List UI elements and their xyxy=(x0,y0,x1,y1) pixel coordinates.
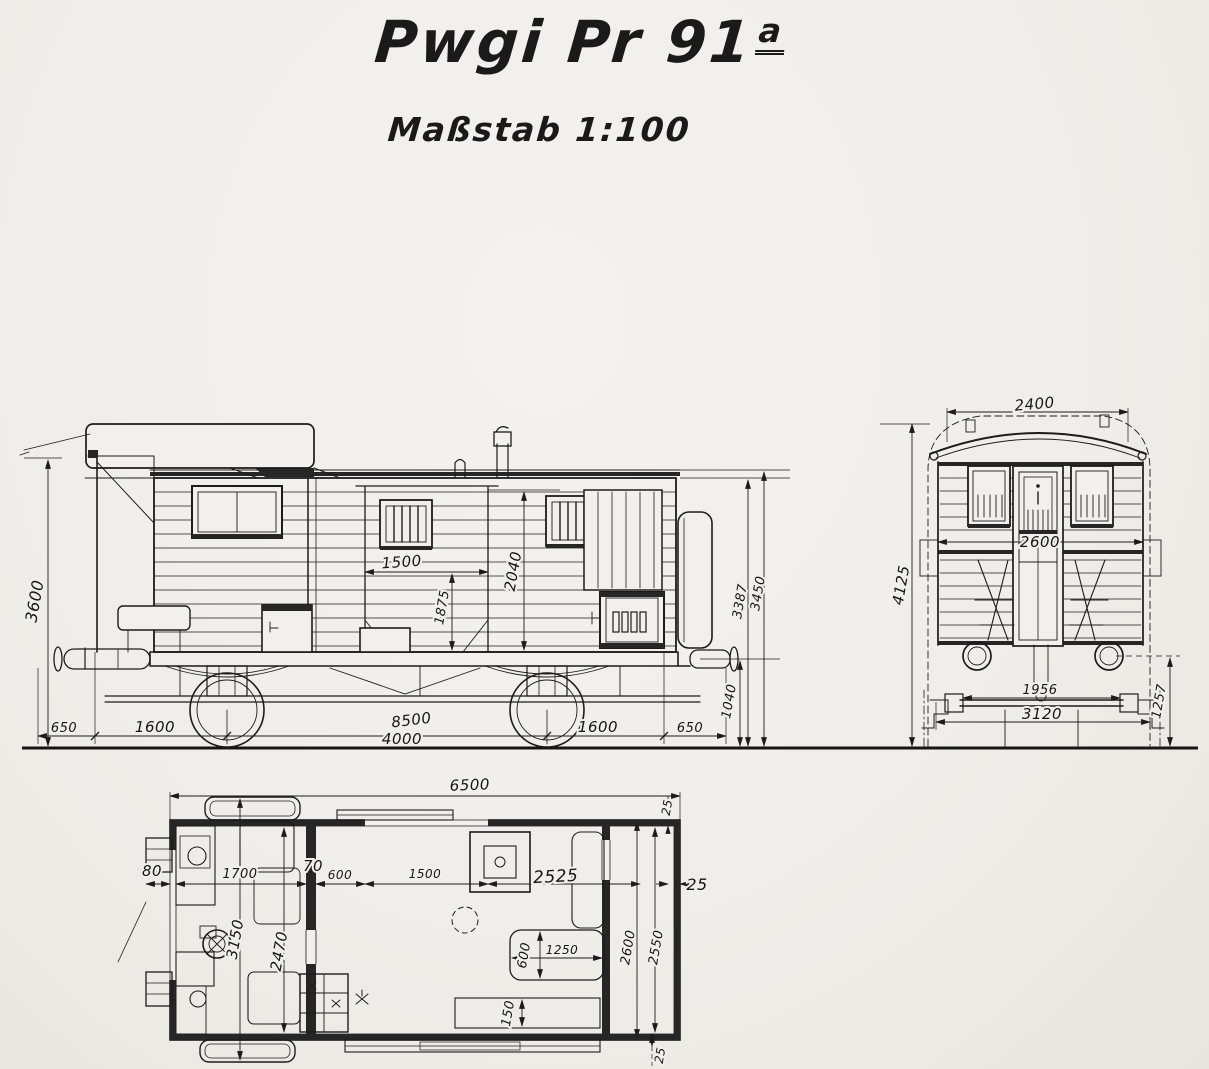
dim-end-body-width: 2600 xyxy=(1020,533,1060,551)
side-platform xyxy=(88,450,190,652)
dim-plan-door-width: 600 xyxy=(328,868,352,882)
dim-side-wheelbase: 4000 xyxy=(382,730,422,748)
plan-dimensions: 6500 25 80 1700 70 600 1500 2525 25 3150… xyxy=(142,775,708,1066)
dim-side-height-roof: 3450 xyxy=(748,575,769,612)
dim-plan-width-over-steps: 3150 xyxy=(223,918,248,961)
dim-end-buffer-height: 1257 xyxy=(1149,683,1170,720)
dim-side-buffer-height: 1040 xyxy=(719,683,740,720)
dim-side-door-opening: 1500 xyxy=(381,552,422,573)
drawing-scale-label: Maßstab 1:100 xyxy=(386,110,692,149)
end-door xyxy=(1013,466,1063,646)
dim-plan-service-compartment: 1700 xyxy=(222,867,257,882)
dim-plan-bench-width: 600 xyxy=(515,941,534,970)
dim-plan-wall-bottom: 25 xyxy=(652,1046,669,1064)
plan-freight-room-furniture xyxy=(452,832,604,1028)
dim-plan-width-body: 2600 xyxy=(618,929,639,966)
side-roof-chimney xyxy=(455,427,511,477)
side-buffer-left xyxy=(54,647,150,671)
side-elevation-view xyxy=(20,424,738,747)
dim-plan-freight-section: 2525 xyxy=(533,866,579,888)
dim-plan-width-interior: 2470 xyxy=(267,930,292,973)
dim-end-height-total: 4125 xyxy=(889,564,914,607)
end-roof xyxy=(930,415,1146,460)
dim-side-overhang-left: 650 xyxy=(51,721,77,736)
dim-plan-length-total: 6500 xyxy=(449,775,490,794)
dim-end-width-over-steps: 3120 xyxy=(1022,705,1062,723)
dim-plan-width-inner: 2550 xyxy=(646,929,667,966)
dim-side-doorway-height: 2040 xyxy=(501,550,526,593)
dim-plan-ledge: 150 xyxy=(499,999,518,1028)
side-cupola-window xyxy=(192,486,282,538)
dim-plan-partition: 70 xyxy=(303,857,323,875)
dim-end-axle-spacing: 1956 xyxy=(1022,683,1057,698)
dim-side-axle-left: 1600 xyxy=(135,718,175,736)
side-end-door xyxy=(584,490,662,590)
title-superscript: a xyxy=(755,11,788,55)
dim-plan-wall-right: 25 xyxy=(686,875,707,894)
dim-side-door-leaf-height: 1875 xyxy=(432,589,453,626)
side-heater-box xyxy=(592,592,664,648)
side-underframe xyxy=(85,648,700,702)
plan-view xyxy=(118,797,680,1062)
dim-end-roof-width: 2400 xyxy=(1014,393,1056,414)
side-end-hood xyxy=(678,512,712,648)
title-text: Pwgi Pr 91 xyxy=(372,8,756,76)
dim-side-axle-right: 1600 xyxy=(578,718,618,736)
drawing-title: Pwgi Pr 91a xyxy=(372,8,788,76)
dim-side-length-total: 8500 xyxy=(390,709,432,732)
dim-side-height-body: 3600 xyxy=(22,578,48,623)
side-barred-window-1 xyxy=(380,500,432,550)
dim-plan-wall-top: 25 xyxy=(659,798,676,816)
dim-plan-end-overhang-left: 80 xyxy=(142,862,162,880)
scanned-drawing-page: Pwgi Pr 91a Maßstab 1:100 xyxy=(0,0,1209,1069)
technical-drawing: 3600 1500 1875 2040 3387 3450 1040 650 1… xyxy=(0,0,1209,1069)
dim-plan-bench-length: 1250 xyxy=(546,943,579,957)
dim-side-overhang-right: 650 xyxy=(677,721,703,736)
end-window-left xyxy=(968,466,1010,528)
end-window-right xyxy=(1071,466,1113,528)
dim-plan-door-opening: 1500 xyxy=(409,867,442,881)
side-hatches xyxy=(262,605,410,652)
